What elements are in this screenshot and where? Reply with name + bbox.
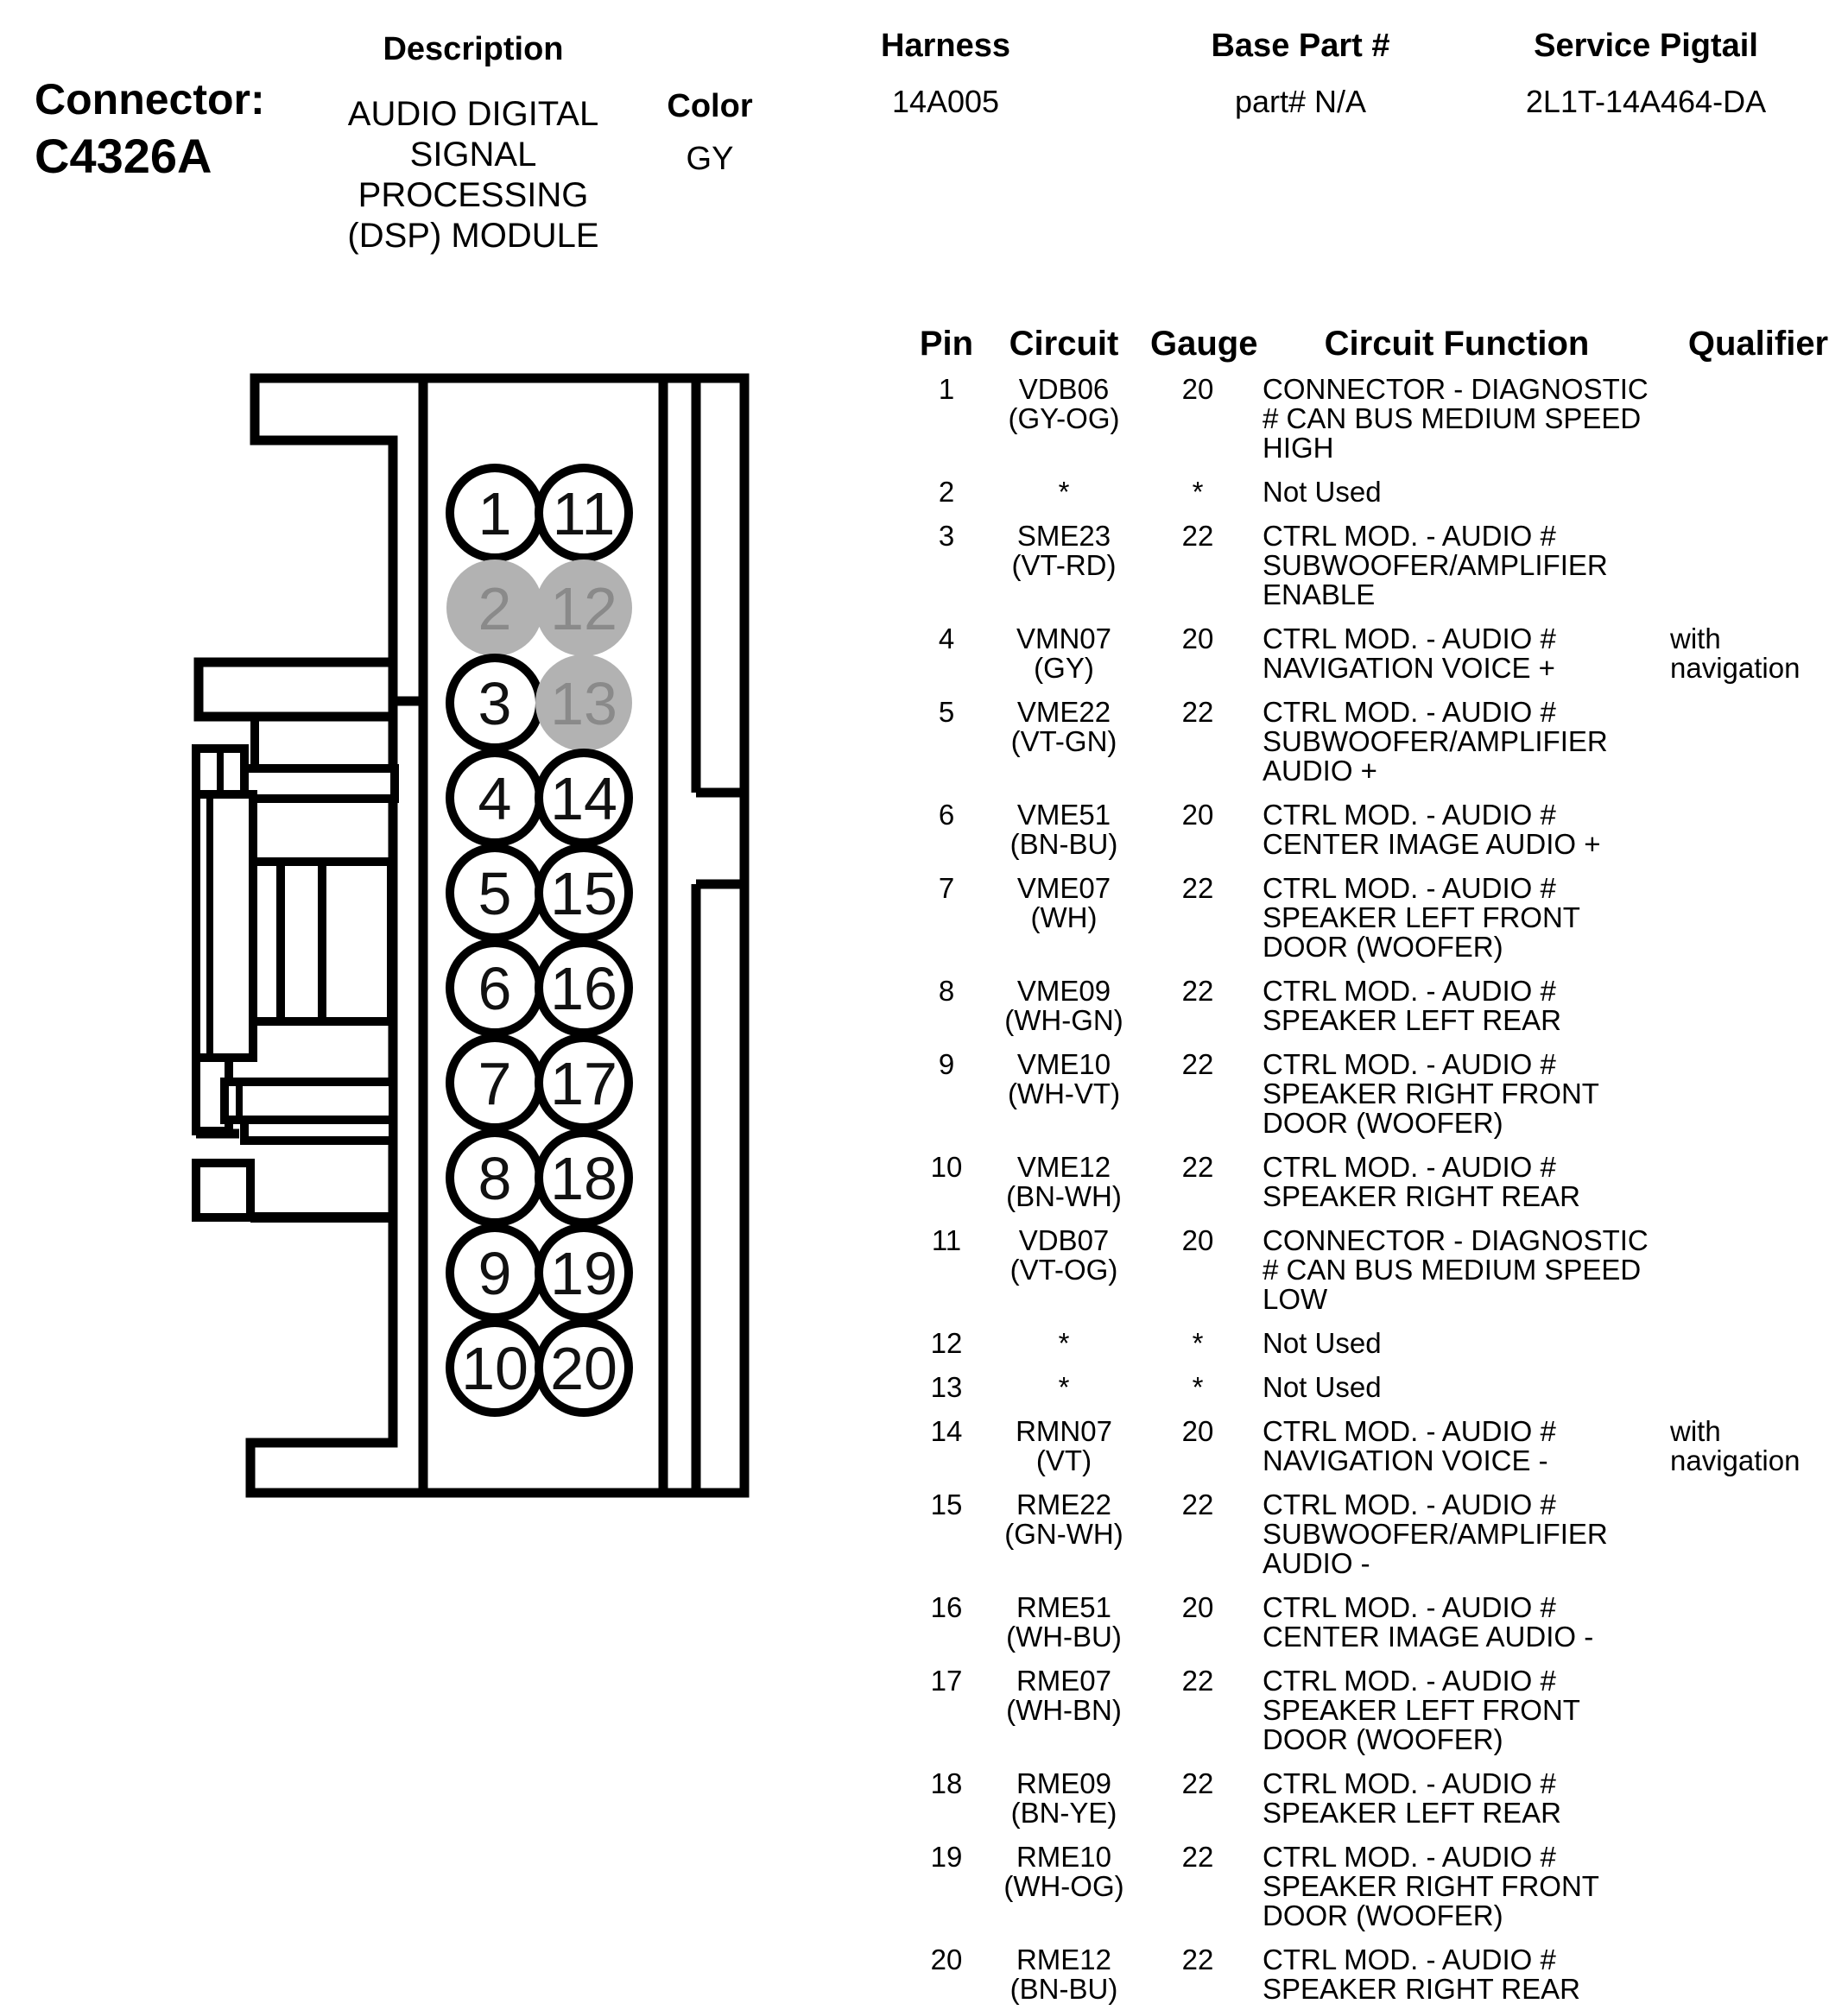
cell-qualifier <box>1668 521 1848 610</box>
cell-circuit: VME22(VT-GN) <box>978 698 1150 786</box>
latch-bar-1 <box>199 662 393 717</box>
cell-function: CTRL MOD. - AUDIO #SPEAKER RIGHT FRONTDO… <box>1245 1842 1668 1931</box>
cell-qualifier <box>1668 977 1848 1035</box>
cell-function: Not Used <box>1245 1329 1668 1358</box>
pin-number-14: 14 <box>550 765 617 832</box>
cell-pin: 18 <box>915 1769 978 1828</box>
cell-pin: 13 <box>915 1373 978 1402</box>
cell-pin: 6 <box>915 800 978 859</box>
table-row: 5 VME22(VT-GN) 22 CTRL MOD. - AUDIO #SUB… <box>915 698 1848 786</box>
cell-function: Not Used <box>1245 477 1668 507</box>
table-row: 8 VME09(WH-GN) 22 CTRL MOD. - AUDIO #SPE… <box>915 977 1848 1035</box>
wiring-diagram-page: Connector: C4326A Description AUDIO DIGI… <box>0 0 1848 2010</box>
pin-number-15: 15 <box>550 860 617 927</box>
cell-pin: 19 <box>915 1842 978 1931</box>
cell-gauge: 22 <box>1150 1769 1245 1828</box>
cell-function: CTRL MOD. - AUDIO #SUBWOOFER/AMPLIFIEREN… <box>1245 521 1668 610</box>
cell-gauge: 22 <box>1150 1490 1245 1578</box>
cell-pin: 15 <box>915 1490 978 1578</box>
cell-qualifier <box>1668 1945 1848 2004</box>
cell-circuit: RMN07(VT) <box>978 1417 1150 1476</box>
pin-number-16: 16 <box>550 955 617 1022</box>
cell-function: CTRL MOD. - AUDIO #SPEAKER RIGHT FRONTDO… <box>1245 1050 1668 1138</box>
cell-circuit: RME12(BN-BU) <box>978 1945 1150 2004</box>
cell-circuit: RME51(WH-BU) <box>978 1593 1150 1652</box>
table-row: 11 VDB07(VT-OG) 20 CONNECTOR - DIAGNOSTI… <box>915 1226 1848 1314</box>
cell-pin: 7 <box>915 874 978 962</box>
pin-number-11: 11 <box>553 480 616 547</box>
pin-number-7: 7 <box>478 1050 512 1117</box>
cell-function: CTRL MOD. - AUDIO #SPEAKER LEFT FRONTDOO… <box>1245 874 1668 962</box>
cell-qualifier <box>1668 698 1848 786</box>
table-row: 10 VME12(BN-WH) 22 CTRL MOD. - AUDIO #SP… <box>915 1153 1848 1211</box>
col-header-function: Circuit Function <box>1245 325 1668 363</box>
cell-qualifier <box>1668 1490 1848 1578</box>
cell-pin: 11 <box>915 1226 978 1314</box>
cell-circuit: VDB07(VT-OG) <box>978 1226 1150 1314</box>
cell-function: CTRL MOD. - AUDIO #CENTER IMAGE AUDIO + <box>1245 800 1668 859</box>
cell-pin: 8 <box>915 977 978 1035</box>
cell-qualifier <box>1668 1050 1848 1138</box>
cell-pin: 1 <box>915 375 978 463</box>
pin-number-8: 8 <box>478 1145 512 1212</box>
pin-number-20: 20 <box>550 1335 617 1402</box>
cell-pin: 16 <box>915 1593 978 1652</box>
cell-gauge: 22 <box>1150 1050 1245 1138</box>
table-row: 16 RME51(WH-BU) 20 CTRL MOD. - AUDIO #CE… <box>915 1593 1848 1652</box>
table-row: 15 RME22(GN-WH) 22 CTRL MOD. - AUDIO #SU… <box>915 1490 1848 1578</box>
col-header-qualifier: Qualifier <box>1668 325 1848 363</box>
cell-gauge: 20 <box>1150 624 1245 683</box>
pin-number-5: 5 <box>478 860 512 927</box>
cell-circuit: * <box>978 1373 1150 1402</box>
cell-function: Not Used <box>1245 1373 1668 1402</box>
cell-gauge: 20 <box>1150 1226 1245 1314</box>
cell-function: CTRL MOD. - AUDIO #SPEAKER LEFT REAR <box>1245 977 1668 1035</box>
pin-number-18: 18 <box>550 1145 617 1212</box>
cell-qualifier <box>1668 874 1848 962</box>
cell-function: CTRL MOD. - AUDIO #SPEAKER LEFT REAR <box>1245 1769 1668 1828</box>
cell-qualifier <box>1668 800 1848 859</box>
cell-circuit: RME10(WH-OG) <box>978 1842 1150 1931</box>
cell-gauge: 20 <box>1150 800 1245 859</box>
pin-number-6: 6 <box>478 955 512 1022</box>
cell-pin: 2 <box>915 477 978 507</box>
cell-pin: 20 <box>915 1945 978 2004</box>
cell-gauge: 22 <box>1150 874 1245 962</box>
table-row: 6 VME51(BN-BU) 20 CTRL MOD. - AUDIO #CEN… <box>915 800 1848 859</box>
cell-gauge: 22 <box>1150 1945 1245 2004</box>
pin-number-10: 10 <box>461 1335 528 1402</box>
pin-table-body: 1 VDB06(GY-OG) 20 CONNECTOR - DIAGNOSTIC… <box>915 375 1848 2004</box>
cell-qualifier <box>1668 1593 1848 1652</box>
cell-function: CTRL MOD. - AUDIO #NAVIGATION VOICE - <box>1245 1417 1668 1476</box>
pin-table: Pin Circuit Gauge Circuit Function Quali… <box>915 325 1848 2010</box>
pin-number-9: 9 <box>478 1240 512 1307</box>
cell-qualifier <box>1668 1226 1848 1314</box>
cell-pin: 9 <box>915 1050 978 1138</box>
cell-qualifier <box>1668 1666 1848 1754</box>
table-row: 4 VMN07(GY) 20 CTRL MOD. - AUDIO #NAVIGA… <box>915 624 1848 683</box>
cell-pin: 5 <box>915 698 978 786</box>
pin-number-13: 13 <box>550 670 617 737</box>
pin-number-19: 19 <box>550 1240 617 1307</box>
cell-qualifier: withnavigation <box>1668 624 1848 683</box>
cell-circuit: * <box>978 477 1150 507</box>
cell-function: CONNECTOR - DIAGNOSTIC# CAN BUS MEDIUM S… <box>1245 375 1668 463</box>
cell-qualifier <box>1668 1769 1848 1828</box>
latch-bar-2 <box>244 768 395 799</box>
cell-gauge: * <box>1150 477 1245 507</box>
cell-pin: 14 <box>915 1417 978 1476</box>
cell-function: CTRL MOD. - AUDIO #CENTER IMAGE AUDIO - <box>1245 1593 1668 1652</box>
cell-pin: 3 <box>915 521 978 610</box>
cell-gauge: 22 <box>1150 1153 1245 1211</box>
cell-pin: 4 <box>915 624 978 683</box>
cell-gauge: 22 <box>1150 977 1245 1035</box>
cell-gauge: 22 <box>1150 698 1245 786</box>
cell-gauge: 22 <box>1150 1666 1245 1754</box>
cell-gauge: 20 <box>1150 1417 1245 1476</box>
cell-pin: 12 <box>915 1329 978 1358</box>
cell-function: CTRL MOD. - AUDIO #SPEAKER RIGHT REAR <box>1245 1945 1668 2004</box>
cell-function: CTRL MOD. - AUDIO #SPEAKER RIGHT REAR <box>1245 1153 1668 1211</box>
cell-gauge: 22 <box>1150 1842 1245 1931</box>
col-header-pin: Pin <box>915 325 978 363</box>
cell-circuit: RME09(BN-YE) <box>978 1769 1150 1828</box>
table-row: 17 RME07(WH-BN) 22 CTRL MOD. - AUDIO #SP… <box>915 1666 1848 1754</box>
cell-qualifier <box>1668 1373 1848 1402</box>
table-row: 13 * * Not Used <box>915 1373 1848 1402</box>
cell-circuit: VME10(WH-VT) <box>978 1050 1150 1138</box>
cell-circuit: RME22(GN-WH) <box>978 1490 1150 1578</box>
cell-gauge: * <box>1150 1329 1245 1358</box>
cell-qualifier: withnavigation <box>1668 1417 1848 1476</box>
table-row: 9 VME10(WH-VT) 22 CTRL MOD. - AUDIO #SPE… <box>915 1050 1848 1138</box>
col-header-gauge: Gauge <box>1150 325 1245 363</box>
cell-gauge: 20 <box>1150 1593 1245 1652</box>
table-row: 12 * * Not Used <box>915 1329 1848 1358</box>
cell-function: CONNECTOR - DIAGNOSTIC# CAN BUS MEDIUM S… <box>1245 1226 1668 1314</box>
table-row: 7 VME07(WH) 22 CTRL MOD. - AUDIO #SPEAKE… <box>915 874 1848 962</box>
cell-qualifier <box>1668 477 1848 507</box>
cell-pin: 10 <box>915 1153 978 1211</box>
pin-table-header: Pin Circuit Gauge Circuit Function Quali… <box>915 325 1848 363</box>
cell-circuit: SME23(VT-RD) <box>978 521 1150 610</box>
latch-block <box>196 794 253 1058</box>
pin-number-3: 3 <box>478 670 512 737</box>
cell-circuit: VDB06(GY-OG) <box>978 375 1150 463</box>
cell-pin: 17 <box>915 1666 978 1754</box>
table-row: 20 RME12(BN-BU) 22 CTRL MOD. - AUDIO #SP… <box>915 1945 1848 2004</box>
cell-function: CTRL MOD. - AUDIO #SUBWOOFER/AMPLIFIERAU… <box>1245 1490 1668 1578</box>
cell-circuit: VME51(BN-BU) <box>978 800 1150 859</box>
pin-number-2: 2 <box>478 575 512 642</box>
latch-tab-bottom <box>196 1163 250 1217</box>
cell-circuit: RME07(WH-BN) <box>978 1666 1150 1754</box>
cell-circuit: * <box>978 1329 1150 1358</box>
table-row: 19 RME10(WH-OG) 22 CTRL MOD. - AUDIO #SP… <box>915 1842 1848 1931</box>
pin-number-1: 1 <box>478 480 512 547</box>
cell-qualifier <box>1668 375 1848 463</box>
pin-number-17: 17 <box>550 1050 617 1117</box>
cell-circuit: VMN07(GY) <box>978 624 1150 683</box>
table-row: 1 VDB06(GY-OG) 20 CONNECTOR - DIAGNOSTIC… <box>915 375 1848 463</box>
latch-bar-3 <box>225 1082 393 1120</box>
table-row: 14 RMN07(VT) 20 CTRL MOD. - AUDIO #NAVIG… <box>915 1417 1848 1476</box>
pin-number-12: 12 <box>550 575 617 642</box>
cell-gauge: 20 <box>1150 375 1245 463</box>
col-header-circuit: Circuit <box>978 325 1150 363</box>
latch-bar-4 <box>244 1120 393 1141</box>
cell-function: CTRL MOD. - AUDIO #NAVIGATION VOICE + <box>1245 624 1668 683</box>
cell-gauge: 22 <box>1150 521 1245 610</box>
cell-gauge: * <box>1150 1373 1245 1402</box>
table-row: 18 RME09(BN-YE) 22 CTRL MOD. - AUDIO #SP… <box>915 1769 1848 1828</box>
cell-qualifier <box>1668 1153 1848 1211</box>
cell-function: CTRL MOD. - AUDIO #SPEAKER LEFT FRONTDOO… <box>1245 1666 1668 1754</box>
cell-circuit: VME12(BN-WH) <box>978 1153 1150 1211</box>
pin-number-4: 4 <box>478 765 512 832</box>
cell-qualifier <box>1668 1842 1848 1931</box>
cell-circuit: VME09(WH-GN) <box>978 977 1150 1035</box>
table-row: 2 * * Not Used <box>915 477 1848 507</box>
cell-circuit: VME07(WH) <box>978 874 1150 962</box>
cell-function: CTRL MOD. - AUDIO #SUBWOOFER/AMPLIFIERAU… <box>1245 698 1668 786</box>
cell-qualifier <box>1668 1329 1848 1358</box>
table-row: 3 SME23(VT-RD) 22 CTRL MOD. - AUDIO #SUB… <box>915 521 1848 610</box>
